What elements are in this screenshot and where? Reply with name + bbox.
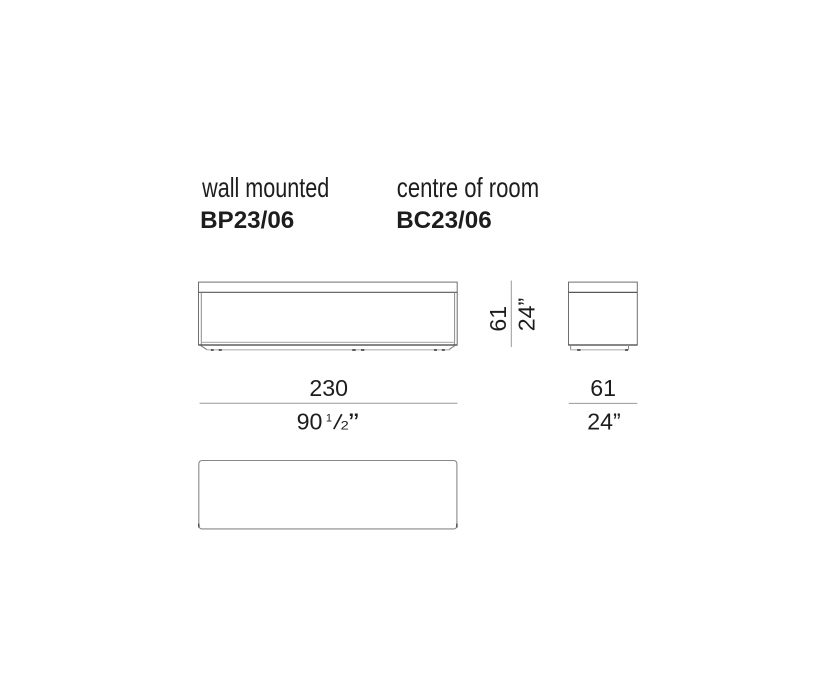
svg-text:61: 61 [590,375,616,401]
svg-text:1: 1 [326,412,332,424]
svg-text:24”: 24” [514,298,540,332]
svg-text:24”: 24” [587,409,621,435]
svg-text:”: ” [349,409,359,438]
svg-text:centre of room: centre of room [397,173,539,204]
svg-text:61: 61 [485,306,511,332]
svg-text:BC23/06: BC23/06 [396,207,491,234]
svg-text:230: 230 [309,375,348,401]
svg-text:BP23/06: BP23/06 [200,207,294,234]
svg-text:2: 2 [341,419,349,432]
svg-text:wall mounted: wall mounted [201,174,329,204]
svg-text:90: 90 [297,408,323,434]
